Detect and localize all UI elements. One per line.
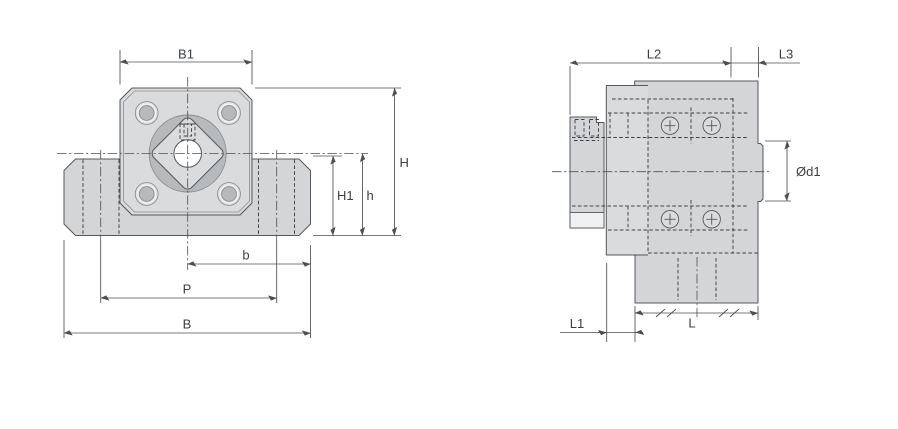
- set-screw: [703, 117, 720, 134]
- dim-L1: L1: [560, 263, 643, 342]
- set-screw: [703, 211, 720, 228]
- bolt-hole: [135, 183, 158, 206]
- flange-plate: [120, 88, 252, 215]
- dim-label-L2: L2: [647, 47, 661, 62]
- technical-drawing-canvas: B1 H H1 h b P: [0, 0, 898, 429]
- support-unit-drawing: B1 H H1 h b P: [0, 0, 898, 429]
- side-end-block-highlight: [570, 213, 604, 229]
- dim-label-H: H: [400, 155, 409, 170]
- dim-L3: L3: [722, 47, 800, 78]
- dim-B1: B1: [120, 47, 252, 85]
- dim-L: L: [635, 306, 758, 342]
- dim-label-L3: L3: [779, 47, 793, 62]
- dim-label-L1: L1: [570, 316, 584, 331]
- side-end-block: [570, 117, 604, 228]
- dim-b: b: [188, 245, 311, 338]
- dim-P: P: [101, 240, 277, 303]
- front-view: B1 H H1 h b P: [57, 47, 409, 339]
- dim-H1: H1: [313, 156, 354, 236]
- set-screw: [661, 117, 678, 134]
- dim-label-P: P: [183, 282, 192, 297]
- dim-label-h: h: [367, 188, 374, 203]
- dim-label-H1: H1: [337, 188, 354, 203]
- bolt-hole: [218, 102, 241, 125]
- bolt-hole: [218, 183, 241, 206]
- dim-label-L: L: [688, 316, 695, 331]
- bolt-hole: [135, 102, 158, 125]
- dim-label-b: b: [242, 248, 249, 263]
- side-view: L2 L3 Ød1 L1 L: [552, 47, 821, 343]
- dim-d1: Ød1: [765, 141, 821, 201]
- side-main-block: [635, 81, 763, 303]
- dim-label-B1: B1: [178, 47, 194, 62]
- set-screw: [661, 211, 678, 228]
- dim-label-B: B: [183, 317, 192, 332]
- dim-label-d1: Ød1: [796, 164, 821, 179]
- dim-h: h: [363, 154, 374, 236]
